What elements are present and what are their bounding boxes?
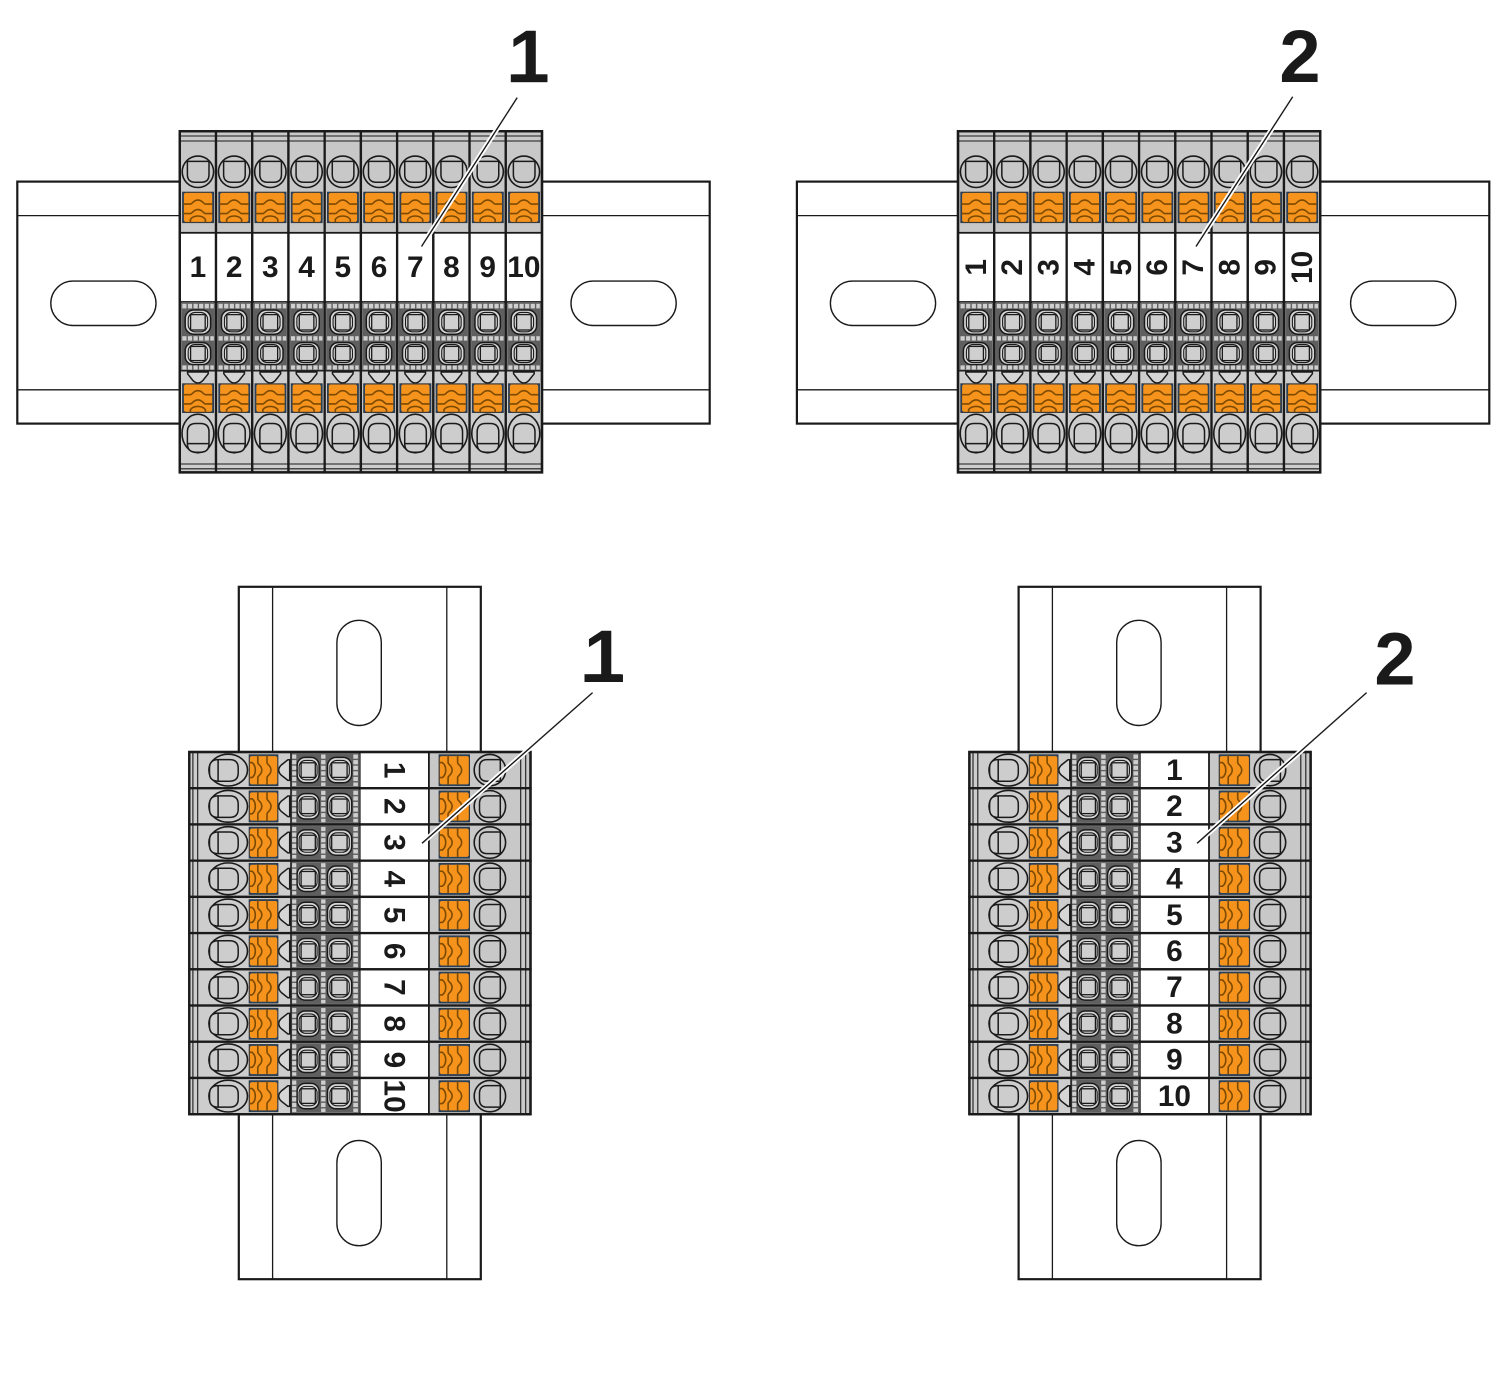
svg-text:1: 1	[584, 615, 625, 698]
svg-text:1: 1	[508, 15, 549, 98]
svg-text:2: 2	[1374, 618, 1415, 701]
svg-text:2: 2	[1279, 15, 1320, 98]
